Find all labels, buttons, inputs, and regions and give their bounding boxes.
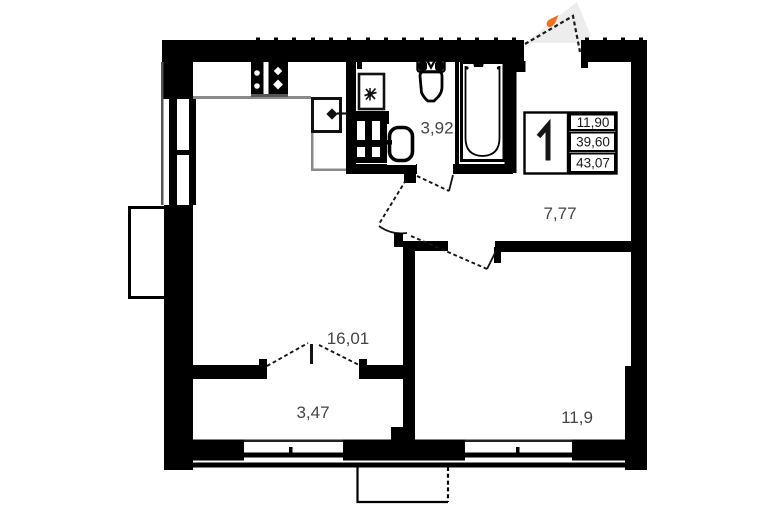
svg-text:11,9: 11,9 (561, 408, 593, 427)
svg-text:43,07: 43,07 (576, 156, 610, 171)
svg-text:11,90: 11,90 (577, 115, 610, 130)
svg-text:7,77: 7,77 (543, 204, 576, 223)
svg-text:3,47: 3,47 (296, 403, 329, 422)
svg-text:16,01: 16,01 (327, 329, 370, 348)
svg-text:39,60: 39,60 (576, 135, 610, 150)
svg-text:3,92: 3,92 (420, 119, 453, 138)
